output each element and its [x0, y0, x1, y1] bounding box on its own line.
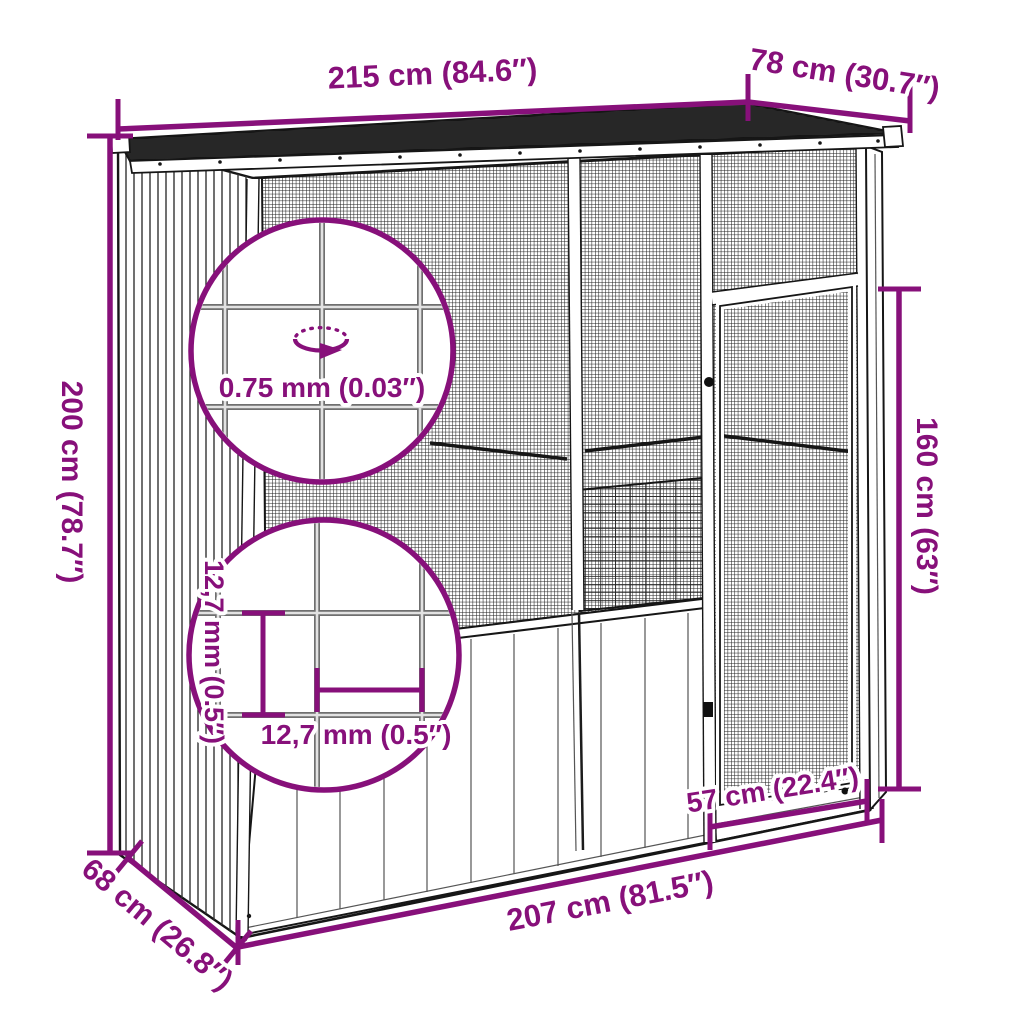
label-door-height: 160 cm (63″) — [910, 417, 943, 595]
roof-cap-right — [883, 126, 903, 147]
label-left-height: 200 cm (78.7″) — [55, 381, 88, 584]
door-hinge-knob — [704, 377, 714, 387]
magnifier-wire-circle — [189, 218, 455, 486]
coarse-mesh-panel — [578, 478, 704, 611]
label-top-width: 215 cm (84.6″) — [327, 51, 538, 95]
label-top-depth: 78 cm (30.7″) — [747, 41, 942, 106]
label-mesh-pitch-horizontal: 12,7 mm (0.5″) — [261, 719, 452, 750]
label-wire-thickness: 0.75 mm (0.03″) — [219, 372, 425, 403]
diagram-canvas: 215 cm (84.6″) 78 cm (30.7″) 200 cm (78.… — [0, 0, 1024, 1024]
door-latch — [703, 702, 713, 717]
aviary-dimension-diagram: 215 cm (84.6″) 78 cm (30.7″) 200 cm (78.… — [0, 0, 1024, 1024]
base-screw — [247, 914, 251, 918]
label-mesh-pitch-vertical: 12,7 mm (0.5″) — [199, 560, 229, 744]
door-column-mesh — [706, 147, 862, 808]
